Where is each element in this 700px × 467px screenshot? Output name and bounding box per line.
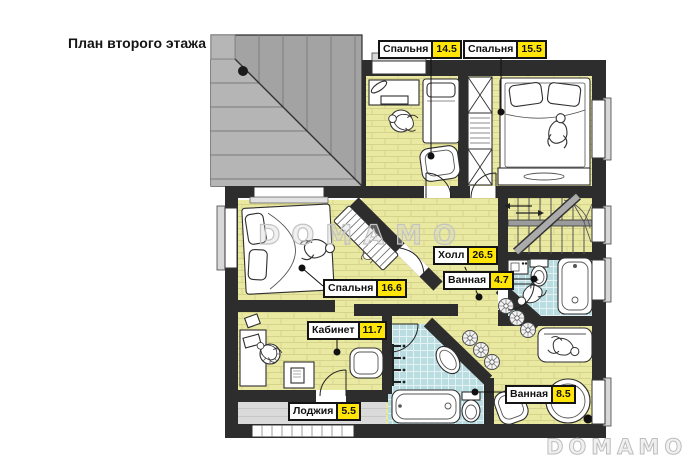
room-area-badge: 8.5 [551,387,574,402]
column-dot [584,415,593,424]
pillow [248,249,268,280]
pillow [547,82,581,107]
room-name: Ванная [507,387,551,402]
window [592,100,605,158]
room-area-badge: 14.5 [431,42,459,57]
bedroom-15-furniture [498,78,590,185]
window [225,208,237,268]
room-label-hall: Холл 26.5 [433,246,498,265]
window [592,208,605,242]
room-label-bedroom-16-6: Спальня 16.6 [323,279,407,298]
room-name: Спальня [325,281,376,296]
room-name: Холл [435,248,467,263]
room-area-badge: 11.7 [358,323,386,338]
room-label-bathroom-8-5: Ванная 8.5 [505,385,576,404]
room-name: Спальня [465,42,516,57]
room-label-bathroom-4-7: Ванная 4.7 [443,271,514,290]
bathtub [558,258,592,314]
armchair [350,348,383,378]
bench-sofa [538,328,592,363]
window [592,260,605,300]
pillow [509,82,544,107]
dresser [498,168,590,185]
room-area-badge: 26.5 [467,248,495,263]
room-label-loggia: Лоджия 5.5 [288,402,361,421]
toilet [462,392,480,422]
page-title: План второго этажа [68,35,206,51]
loggia-glazing [252,425,354,437]
window [592,380,605,424]
room-name: Лоджия [290,404,336,419]
room-label-bedroom-14-5: Спальня 14.5 [378,40,462,59]
roof [211,35,362,186]
bathtub [392,390,460,423]
room-area-badge: 15.5 [516,42,544,57]
window [254,187,324,198]
floor-plan-page: План второго этажа [0,0,700,467]
room-name: Кабинет [309,323,358,338]
monitor [381,96,408,104]
room-name: Ванная [445,273,489,288]
room-label-office: Кабинет 11.7 [307,321,387,340]
chimney-dot [238,66,248,76]
watermark-corner: DOMAMO [546,435,687,459]
room-label-bedroom-15-5: Спальня 15.5 [463,40,547,59]
room-area-badge: 16.6 [376,281,404,296]
wardrobe [468,77,492,185]
window [372,61,426,74]
room-area-badge: 4.7 [489,273,512,288]
room-area-badge: 5.5 [336,404,359,419]
room-name: Спальня [380,42,431,57]
